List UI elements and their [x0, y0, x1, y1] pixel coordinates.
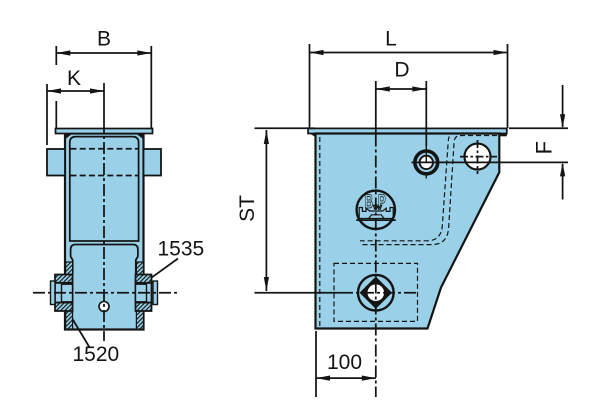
- svg-text:L: L: [385, 28, 397, 51]
- svg-text:B: B: [97, 28, 111, 51]
- svg-text:1535: 1535: [158, 238, 205, 261]
- svg-text:D: D: [394, 59, 409, 82]
- svg-text:1520: 1520: [73, 343, 120, 366]
- svg-text:W: W: [373, 204, 382, 211]
- svg-text:F: F: [532, 141, 557, 154]
- svg-text:ST: ST: [236, 195, 259, 222]
- svg-text:100: 100: [327, 351, 362, 374]
- svg-text:K: K: [67, 67, 81, 90]
